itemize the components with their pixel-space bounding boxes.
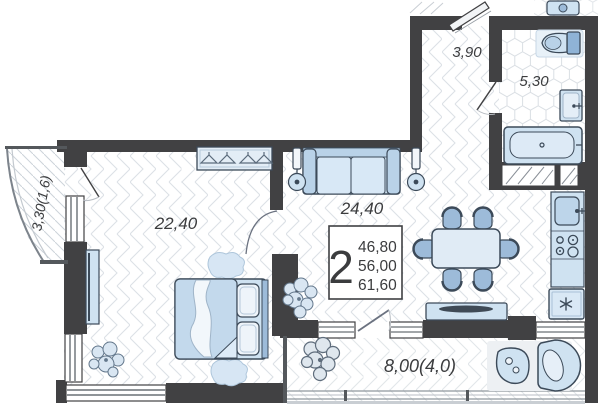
wall-entry-right xyxy=(494,16,597,30)
wall-bathroom-left-lower xyxy=(489,113,502,166)
wall-bedroom-bottom xyxy=(166,383,283,403)
total-area-value: 61,60 xyxy=(358,277,397,294)
wall-bathroom-left-upper xyxy=(489,16,502,82)
wall-bedroom-corner xyxy=(56,380,67,403)
wall-hallway-left xyxy=(410,16,422,152)
living-area-label: 24,40 xyxy=(340,199,384,218)
sofa xyxy=(303,148,400,194)
info-box: 2 46,80 56,00 61,60 xyxy=(328,226,402,299)
dining-chair xyxy=(443,208,462,230)
window-bedroom-bottom xyxy=(66,385,166,401)
bed-rug-bottom xyxy=(211,360,247,386)
balcony-armchair xyxy=(538,340,581,391)
wall-living-bottom-a xyxy=(280,320,318,338)
living-area-value: 46,80 xyxy=(358,239,397,256)
tv-console xyxy=(426,303,507,320)
bathroom-sink xyxy=(560,90,582,121)
closet-hangers xyxy=(197,147,272,170)
wall-bedroom-left-stub xyxy=(64,140,87,167)
wall-right xyxy=(585,16,598,403)
rooms-count: 2 xyxy=(328,241,354,293)
window-living-balcony-right xyxy=(390,322,423,338)
neighbor-sink xyxy=(547,1,579,15)
area-value: 56,00 xyxy=(358,258,397,275)
window-bedroom-left-lower xyxy=(65,334,82,382)
floor-plan-page: 22,40 24,40 3,90 5,30 8,00(4,0) 3,30(1,6… xyxy=(0,0,600,406)
dining-chair xyxy=(474,269,493,291)
window-bedroom-balcony xyxy=(66,196,84,242)
toilet xyxy=(542,32,580,54)
fridge xyxy=(549,289,584,319)
dining-table xyxy=(432,229,500,268)
kitchen-counter xyxy=(551,192,585,287)
dining-chair xyxy=(474,208,493,230)
corridor-hatch xyxy=(410,2,443,14)
bedroom-area-label: 22,40 xyxy=(154,214,198,233)
dining-chair xyxy=(443,269,462,291)
headboard xyxy=(262,280,268,358)
bed-rug-top xyxy=(208,253,244,279)
bathtub xyxy=(504,127,582,164)
tv xyxy=(439,306,493,313)
bathroom-area-label: 5,30 xyxy=(519,73,549,90)
wall-living-bottom-pillar xyxy=(508,316,536,340)
hallway-area-label: 3,90 xyxy=(452,44,482,61)
bed xyxy=(175,279,268,359)
balcony-bottom-area-label: 8,00(4,0) xyxy=(384,356,456,376)
bedroom-tv-panel xyxy=(86,250,99,324)
window-living-balcony-left xyxy=(318,322,355,338)
balcony-side-table xyxy=(497,348,529,383)
vent-shafts xyxy=(502,165,578,186)
wall-bedroom-left-mid xyxy=(64,242,87,334)
window-kitchen-balcony xyxy=(536,322,585,338)
floor-plan: 22,40 24,40 3,90 5,30 8,00(4,0) 3,30(1,6… xyxy=(0,0,600,406)
